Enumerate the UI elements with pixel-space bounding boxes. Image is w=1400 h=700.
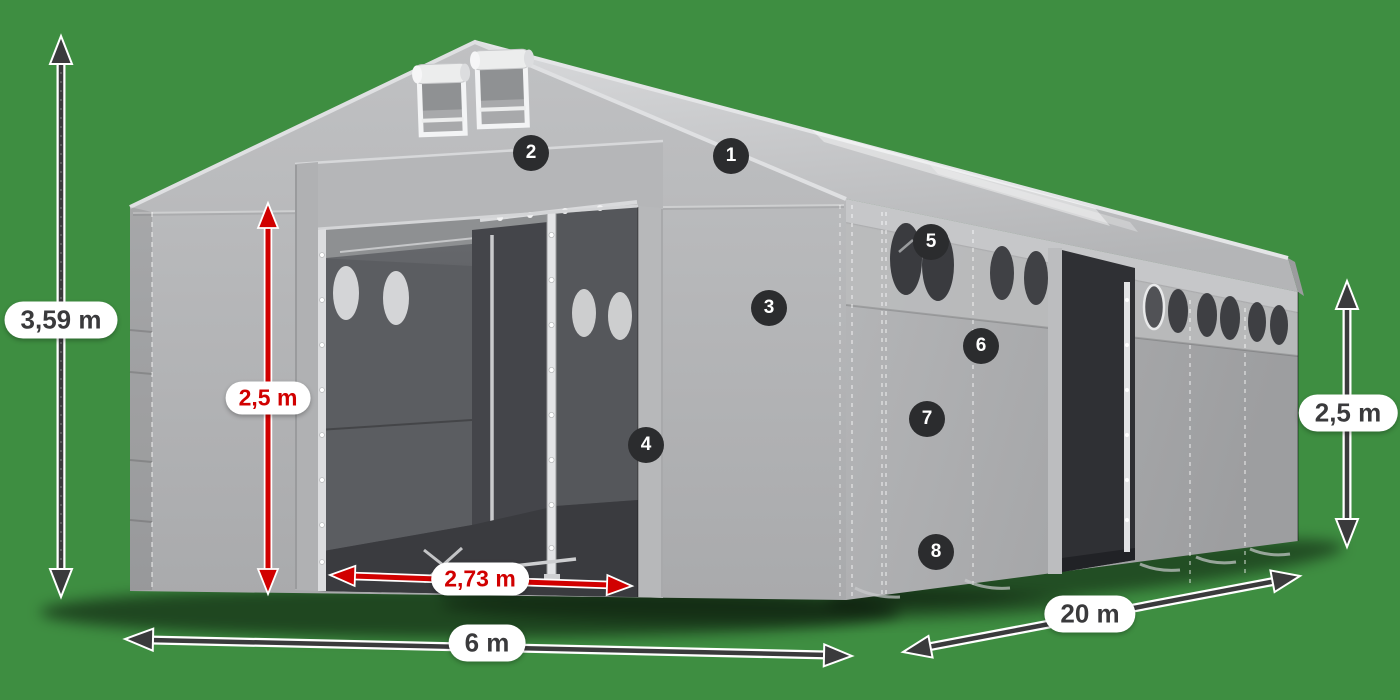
side-window-oval (990, 246, 1014, 300)
hotspot-badge-6[interactable]: 6 (963, 328, 999, 364)
interior-pole (1124, 282, 1130, 552)
hotspot-badge-4[interactable]: 4 (628, 427, 664, 463)
door-width-label: 2,73 m (431, 563, 529, 596)
hotspot-badge-7[interactable]: 7 (909, 401, 945, 437)
hotspot-badge-2[interactable]: 2 (513, 135, 549, 171)
interior-deep-space (472, 222, 548, 540)
hotspot-badge-8[interactable]: 8 (918, 534, 954, 570)
interior-window-oval (383, 271, 409, 325)
tent-illustration (0, 0, 1400, 700)
side-height-label: 2,5 m (1299, 395, 1398, 432)
total-height-label: 3,59 m (5, 302, 118, 339)
front-left-corner (130, 207, 152, 591)
tent-dimension-diagram: 1 2 3 4 5 6 7 8 3,59 m 2,5 m 2,73 m 6 m … (0, 0, 1400, 700)
side-sliding-door-opening (1048, 248, 1135, 574)
hotspot-badge-5[interactable]: 5 (913, 224, 949, 260)
door-opening-interior (318, 202, 638, 597)
interior-window-oval (608, 292, 632, 340)
hotspot-badge-1[interactable]: 1 (713, 138, 749, 174)
hotspot-badge-3[interactable]: 3 (751, 290, 787, 326)
interior-window-oval (572, 289, 596, 337)
door-height-label: 2,5 m (226, 382, 311, 415)
interior-partition (556, 206, 638, 506)
side-length-label: 20 m (1044, 596, 1135, 633)
door-right-post (638, 206, 663, 598)
side-window-oval (1024, 251, 1048, 305)
gable-vent-right (470, 49, 537, 127)
front-width-label: 6 m (449, 625, 526, 662)
interior-window-oval (333, 266, 359, 320)
gable-vent-left (412, 63, 472, 135)
